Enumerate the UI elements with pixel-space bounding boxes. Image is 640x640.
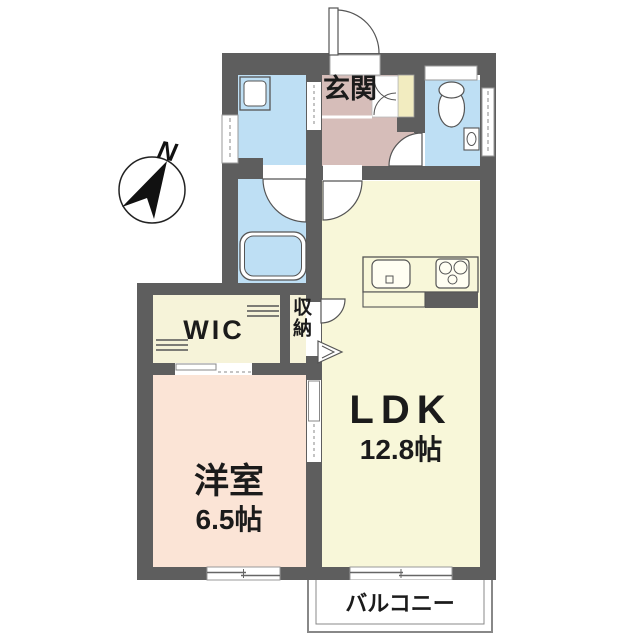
toilet-icon: [439, 82, 465, 127]
compass-north-label: N: [155, 134, 181, 168]
window-toilet-north: [425, 66, 477, 80]
sliding-window-ldk: [350, 567, 452, 580]
front-door-leaf: [329, 8, 338, 55]
storage-label: 収納: [288, 297, 312, 363]
western-room-size-label: 6.5帖: [161, 506, 297, 534]
kitchen-sink-icon: [372, 260, 410, 288]
balcony-label: バルコニー: [320, 593, 480, 615]
ldk-floor: [322, 181, 480, 567]
gas-stove-icon: [436, 259, 469, 288]
sliding-door-wic-panel: [176, 364, 216, 370]
bath-door-opening: [263, 165, 306, 179]
ldk-size-label: 12.8帖: [329, 436, 473, 464]
sliding-door-western-ldk-panel: [309, 381, 320, 421]
entrance-label: 玄関: [320, 76, 380, 103]
shoe-cabinet: [398, 75, 414, 117]
western-room-label: 洋室: [161, 464, 297, 499]
front-door: [329, 8, 380, 75]
wall-kitchen-stub: [425, 292, 478, 308]
ldk-door-opening: [323, 165, 362, 181]
entrance-step-line: [322, 116, 372, 119]
hand-wash-basin-icon: [464, 128, 479, 150]
wall-toilet-west: [414, 75, 425, 133]
front-door-threshold: [330, 55, 380, 75]
wall-west-lower: [137, 283, 153, 580]
front-door-arc: [338, 10, 379, 54]
wic-label: WIC: [153, 317, 275, 344]
floor-plan: N 玄関 LDK 12.8帖 洋室 6.5帖 WIC 収納 バルコニー: [0, 0, 640, 640]
wall-closet-north: [137, 283, 322, 295]
ldk-label: LDK: [329, 390, 473, 430]
sliding-window-western-room: [207, 567, 280, 580]
compass: N: [119, 134, 185, 223]
bathtub-icon: [240, 232, 306, 280]
